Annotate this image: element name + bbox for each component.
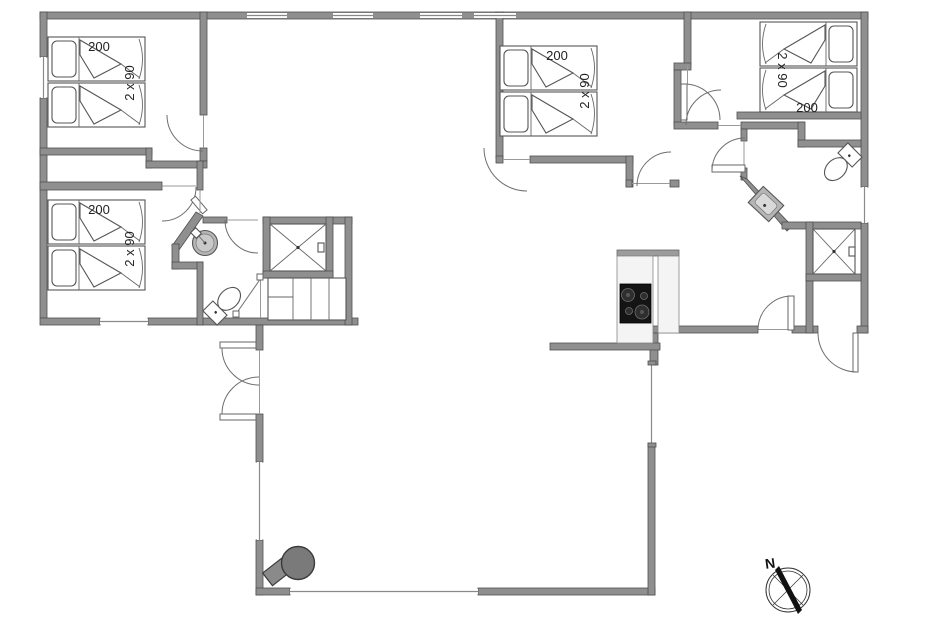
bed-length-label: 200 (88, 39, 110, 54)
door-arc-icon (484, 148, 527, 191)
door-leaf (220, 342, 256, 348)
door-arc-icon (222, 348, 259, 385)
wall (256, 540, 263, 595)
wall (40, 182, 162, 190)
wall (40, 12, 47, 57)
wall (741, 129, 747, 141)
window (862, 187, 867, 223)
door-leaf (220, 414, 256, 420)
wall (674, 63, 691, 70)
shower-drain (832, 250, 835, 253)
shower-drain (296, 246, 299, 249)
pillow-icon (504, 50, 528, 86)
cooktop-icon (620, 284, 651, 323)
washbasin-round (191, 228, 218, 256)
stairs-icon (268, 278, 346, 320)
wall (806, 274, 861, 281)
window (648, 361, 656, 447)
door-leaf (712, 165, 745, 172)
wall (263, 271, 333, 278)
door-leaf (191, 196, 207, 214)
kitchen-counter (617, 250, 679, 343)
wall (256, 325, 263, 350)
counter-right (658, 256, 679, 333)
bed-size-label: 2 x 90 (577, 73, 592, 108)
wall (200, 12, 207, 115)
wall (197, 262, 203, 325)
windows (41, 13, 867, 594)
pillow-icon (52, 250, 76, 286)
wall (674, 70, 681, 126)
door-arc-icon (222, 377, 259, 414)
beds (48, 22, 857, 290)
walls (40, 12, 868, 595)
pillow-icon (52, 41, 76, 77)
window (257, 462, 262, 540)
wall (40, 148, 152, 155)
wall (626, 180, 632, 187)
wall (674, 122, 718, 129)
floor-plan-drawing: N 200 2 x 90 200 2 x 90 200 2 x 90 2 x 9… (0, 0, 930, 620)
wall (256, 588, 290, 595)
door-leaf (681, 84, 687, 120)
bed-size-label: 2 x 90 (122, 231, 137, 266)
wall (263, 217, 352, 224)
bed-icon (760, 22, 857, 66)
wall (648, 443, 655, 595)
wall (197, 161, 203, 190)
door-arc-icon (167, 115, 203, 151)
wall (530, 156, 633, 163)
window (41, 57, 46, 98)
shower-tap (849, 247, 855, 256)
door-leaf (853, 333, 858, 372)
pillow-icon (829, 72, 853, 108)
door-arc-icon (818, 333, 857, 372)
wall (496, 156, 503, 163)
wall (782, 222, 861, 229)
door-arc-icon (758, 296, 792, 330)
door-hinge (257, 274, 263, 280)
wall (550, 343, 660, 350)
door-leaf (788, 296, 794, 330)
door-arc-icon (225, 220, 258, 253)
window (474, 13, 516, 18)
pillow-icon (52, 87, 76, 123)
wall (684, 12, 691, 66)
wall (326, 217, 333, 278)
wall (263, 217, 270, 278)
wall (792, 326, 818, 333)
shower-right (813, 229, 855, 274)
window (290, 589, 478, 594)
bed-length-label: 200 (546, 48, 568, 63)
wall (40, 318, 100, 325)
shower-left (270, 224, 326, 271)
door-hinge (233, 311, 239, 317)
pillow-icon (504, 96, 528, 132)
wall (861, 223, 868, 333)
window (247, 13, 287, 18)
wall (806, 222, 813, 281)
door-arc-icon (686, 90, 721, 125)
wall (203, 217, 227, 223)
toilet-right (820, 143, 862, 185)
window (100, 319, 148, 324)
wall (857, 326, 868, 333)
window (420, 13, 462, 18)
bed-size-label: 2 x 90 (122, 65, 137, 100)
pillow-icon (52, 204, 76, 240)
wall (40, 98, 47, 318)
floor-plan-page: N 200 2 x 90 200 2 x 90 200 2 x 90 2 x 9… (0, 0, 930, 620)
wall (200, 148, 207, 161)
shower-tap (318, 243, 324, 252)
counter-edge (617, 250, 679, 256)
bed-length-label: 200 (88, 202, 110, 217)
window (333, 13, 373, 18)
wall (256, 414, 263, 462)
wall (741, 122, 804, 129)
compass-icon: N (764, 555, 810, 614)
door-arc-icon (162, 187, 196, 221)
wall (478, 588, 655, 595)
pillow-icon (829, 26, 853, 62)
wall (670, 180, 679, 187)
door-arc-icon (637, 152, 671, 186)
bed-size-label: 2 x 90 (775, 52, 790, 87)
wall (806, 281, 813, 333)
bed-length-label: 200 (796, 100, 818, 115)
door-arc-icon (686, 84, 720, 120)
compass-north-label: N (764, 555, 776, 572)
wall (861, 12, 868, 187)
wood-stove-icon (263, 547, 315, 586)
